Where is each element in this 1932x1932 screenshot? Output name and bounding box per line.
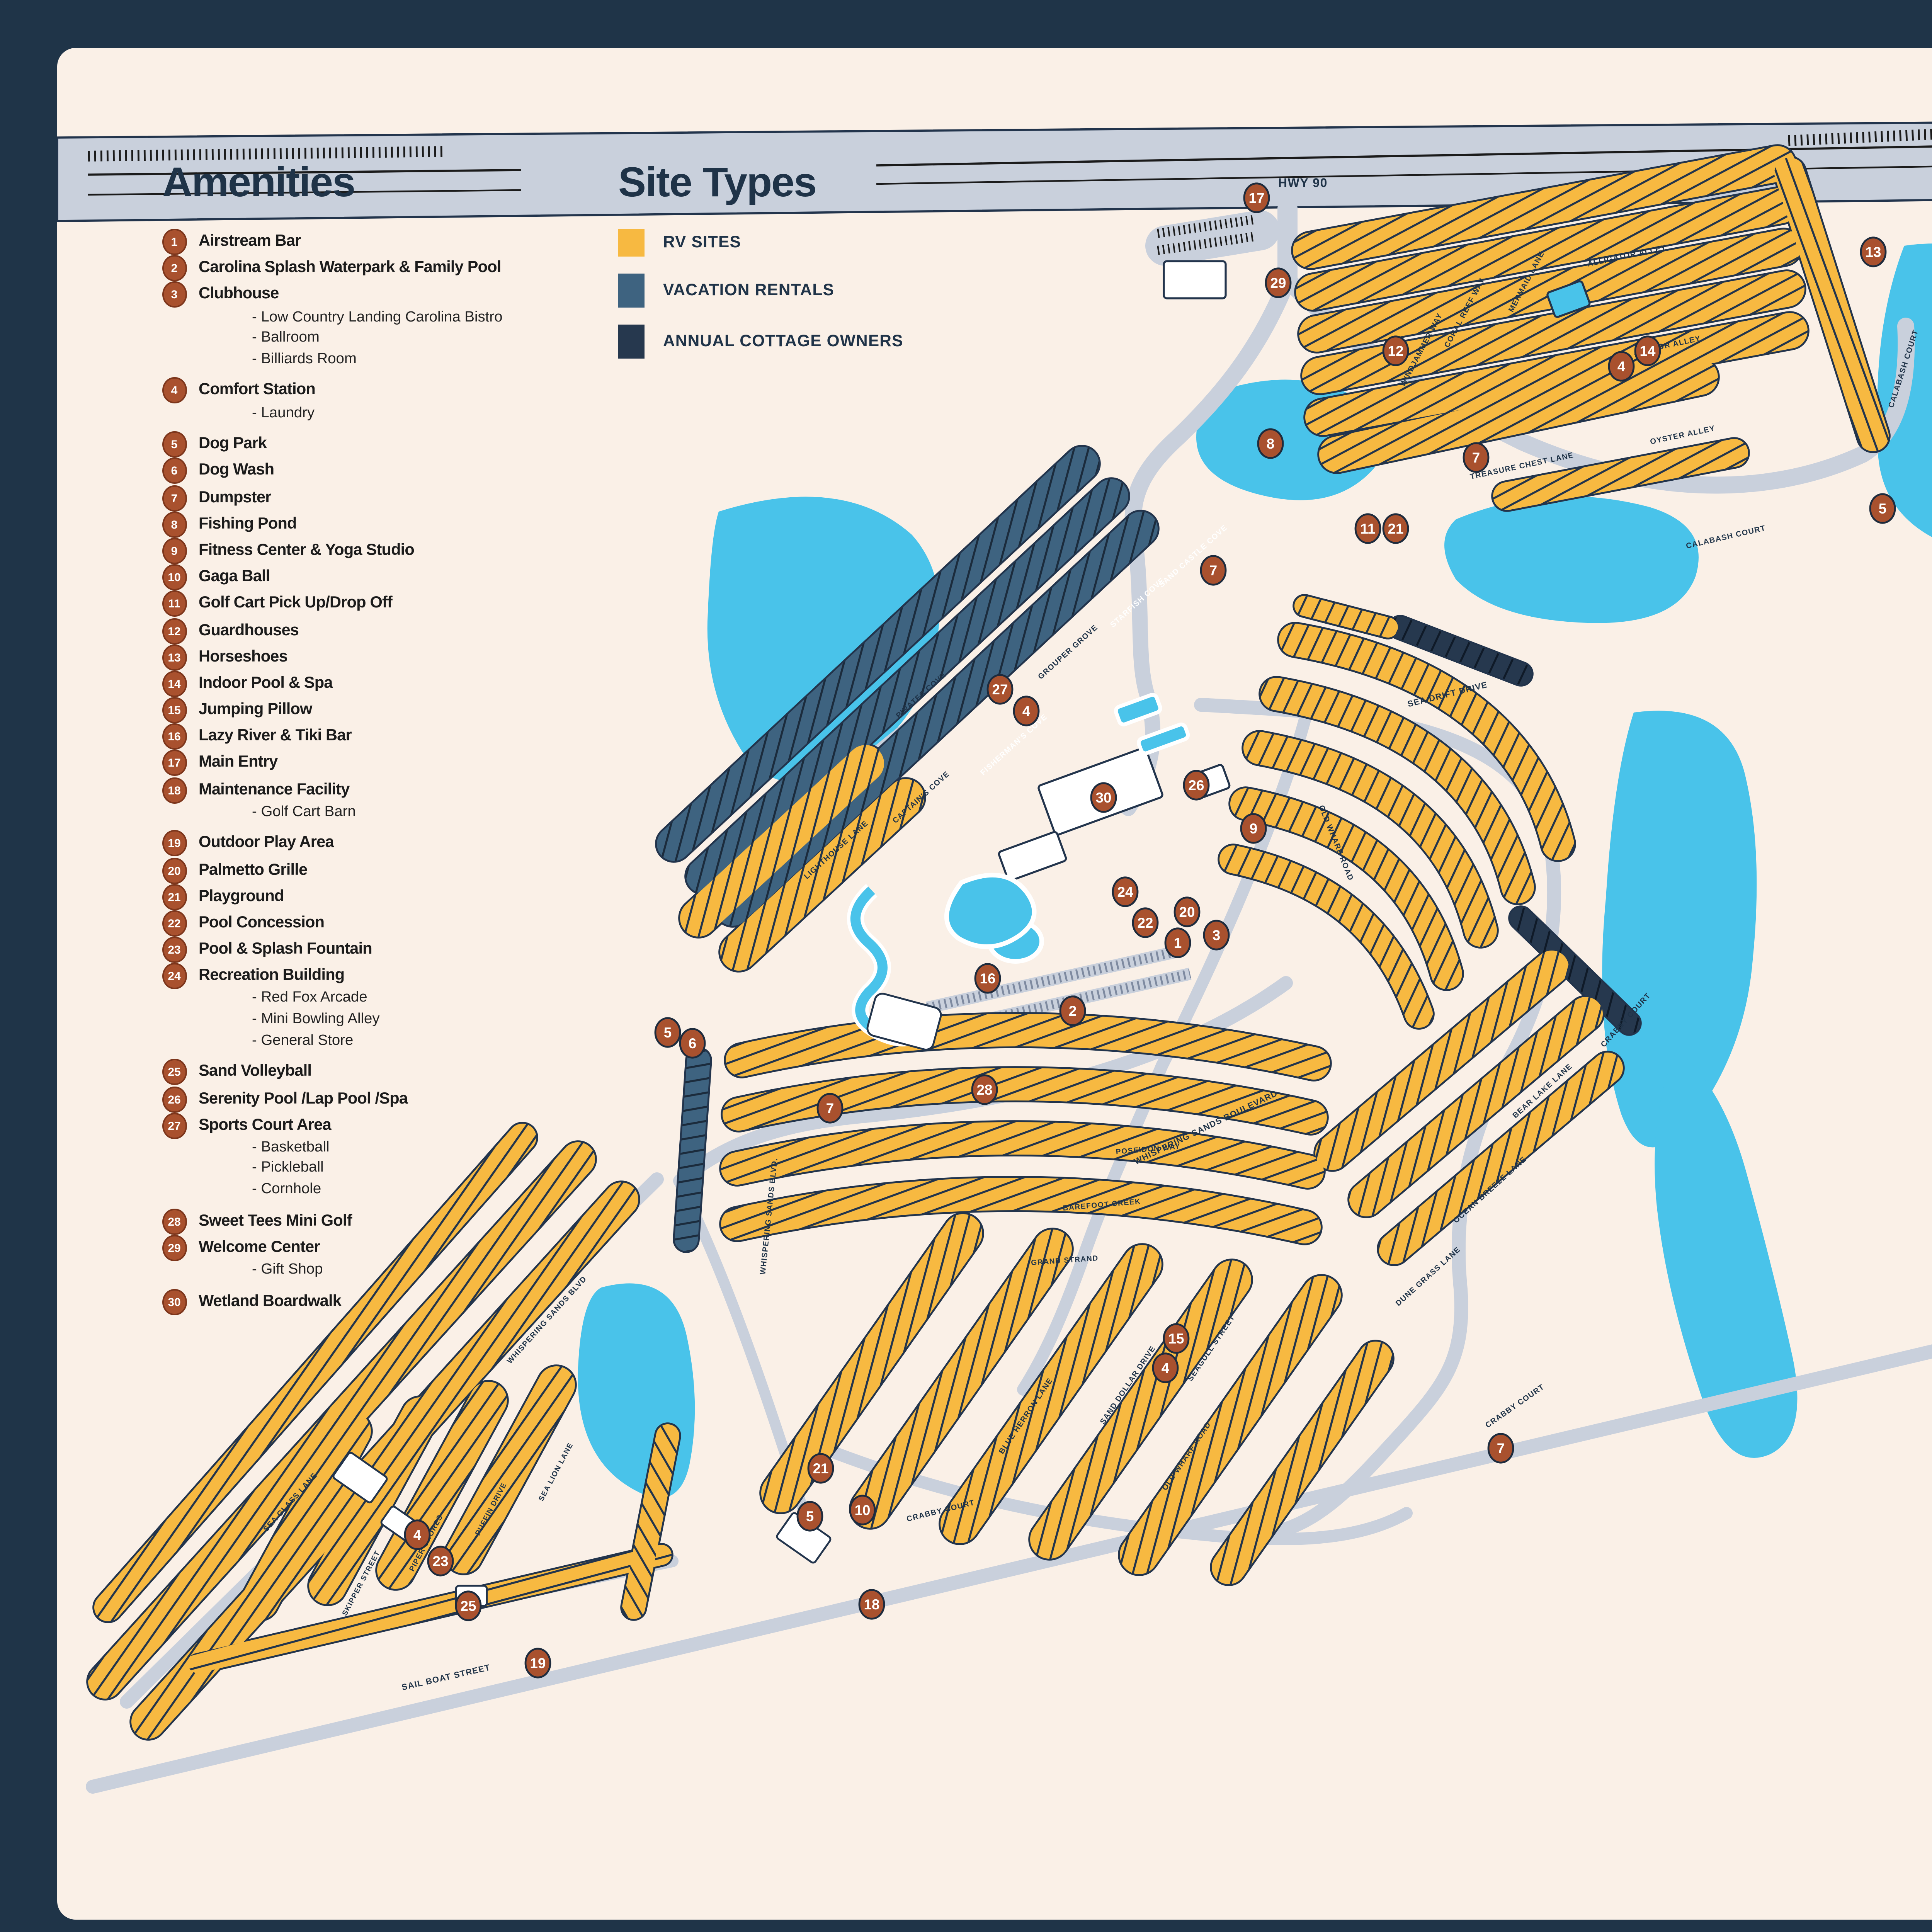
svg-text:17: 17: [1249, 190, 1265, 206]
amenities-list: 1Airstream Bar2Carolina Splash Waterpark…: [162, 229, 626, 1315]
map-marker-4: 4: [1153, 1354, 1178, 1382]
map-marker-21: 21: [808, 1454, 833, 1483]
amenity-number-badge: 13: [162, 644, 186, 670]
svg-text:14: 14: [1640, 343, 1656, 359]
map-marker-11: 11: [1355, 514, 1380, 543]
amenity-sub-item: - Gift Shop: [162, 1261, 626, 1282]
map-marker-6: 6: [680, 1029, 705, 1058]
amenity-number-badge: 22: [162, 910, 186, 937]
map-marker-19: 19: [526, 1649, 550, 1677]
street-label: SAIL BOAT STREET: [401, 1662, 492, 1692]
amenity-number-badge: 19: [162, 831, 186, 857]
amenity-number-badge: 21: [162, 884, 186, 910]
svg-text:5: 5: [664, 1025, 672, 1041]
amenity-label: Recreation Building: [199, 968, 344, 985]
map-marker-7: 7: [818, 1094, 842, 1122]
map-marker-21: 21: [1383, 514, 1408, 543]
amenity-sub-item: - Basketball: [162, 1139, 626, 1160]
amenity-item-13: 13Horseshoes: [162, 644, 626, 671]
map-marker-17: 17: [1244, 184, 1269, 212]
amenity-label: Dumpster: [199, 489, 271, 506]
amenity-number-badge: 27: [162, 1112, 186, 1139]
site-type-label: ANNUAL COTTAGE OWNERS: [663, 332, 903, 351]
map-marker-9: 9: [1241, 814, 1266, 843]
amenity-sub-item: - Ballroom: [162, 330, 626, 350]
amenity-number-badge: 15: [162, 697, 186, 723]
sites-a-calabash: [1790, 173, 1873, 436]
amenity-label: Pool Concession: [199, 915, 324, 932]
amenity-item-29: 29Welcome Center: [162, 1235, 626, 1261]
amenity-number-badge: 29: [162, 1235, 186, 1261]
amenity-sub-item: - Low Country Landing Carolina Bistro: [162, 308, 626, 329]
amenity-label: Indoor Pool & Spa: [199, 675, 333, 692]
map-marker-4: 4: [1609, 352, 1634, 381]
map-marker-4: 4: [405, 1520, 430, 1549]
svg-text:7: 7: [826, 1100, 834, 1116]
amenity-number-badge: 4: [162, 378, 186, 404]
map-marker-7: 7: [1488, 1434, 1513, 1463]
street-label: CALABASH COURT: [1685, 524, 1767, 551]
amenity-item-22: 22Pool Concession: [162, 910, 626, 937]
svg-text:4: 4: [1162, 1360, 1170, 1376]
amenity-item-10: 10Gaga Ball: [162, 564, 626, 591]
map-marker-20: 20: [1175, 898, 1199, 926]
amenity-number-badge: 26: [162, 1086, 186, 1112]
map-marker-5: 5: [798, 1502, 822, 1531]
amenity-item-16: 16Lazy River & Tiki Bar: [162, 724, 626, 750]
amenity-item-30: 30Wetland Boardwalk: [162, 1288, 626, 1315]
map-marker-3: 3: [1204, 921, 1229, 949]
amenity-item-7: 7Dumpster: [162, 485, 626, 511]
amenity-item-21: 21Playground: [162, 884, 626, 910]
svg-text:12: 12: [1388, 343, 1404, 359]
map-marker-5: 5: [1870, 494, 1895, 523]
svg-text:23: 23: [433, 1553, 449, 1569]
amenity-label: Fishing Pond: [199, 516, 297, 533]
map-marker-8: 8: [1258, 429, 1283, 458]
welcome-center-building: [1164, 261, 1226, 298]
amenity-label: Serenity Pool /Lap Pool /Spa: [199, 1090, 408, 1107]
amenity-item-26: 26Serenity Pool /Lap Pool /Spa: [162, 1086, 626, 1112]
amenity-label: Carolina Splash Waterpark & Family Pool: [199, 260, 501, 277]
amenity-item-17: 17Main Entry: [162, 750, 626, 777]
map-marker-29: 29: [1266, 269, 1291, 297]
amenity-sub-item: - General Store: [162, 1032, 626, 1053]
amenity-label: Pool & Splash Fountain: [199, 942, 372, 959]
svg-text:26: 26: [1189, 777, 1204, 793]
street-label: HWY 90: [1278, 176, 1328, 190]
amenity-number-badge: 10: [162, 565, 186, 591]
amenity-item-24: 24Recreation Building: [162, 963, 626, 990]
site-type-row: VACATION RENTALS: [618, 274, 989, 308]
svg-text:16: 16: [980, 971, 996, 986]
site-types-title: Site Types: [618, 159, 989, 207]
amenity-number-badge: 17: [162, 750, 186, 777]
amenity-item-8: 8Fishing Pond: [162, 511, 626, 538]
amenities-legend: Amenities 1Airstream Bar2Carolina Splash…: [162, 159, 626, 1315]
recreation-building: [998, 831, 1067, 881]
amenity-label: Fitness Center & Yoga Studio: [199, 543, 414, 560]
amenity-number-badge: 20: [162, 857, 186, 884]
svg-text:9: 9: [1250, 821, 1257, 837]
map-marker-7: 7: [1464, 443, 1488, 472]
amenity-sub-item: - Laundry: [162, 404, 626, 425]
svg-text:25: 25: [461, 1598, 476, 1614]
amenity-label: Airstream Bar: [199, 233, 301, 250]
site-types-list: RV SITESVACATION RENTALSANNUAL COTTAGE O…: [618, 229, 989, 359]
site-type-swatch: [618, 274, 645, 308]
svg-text:11: 11: [1361, 521, 1376, 537]
svg-text:22: 22: [1138, 915, 1153, 931]
amenity-label: Sports Court Area: [199, 1117, 331, 1134]
svg-text:13: 13: [1866, 244, 1881, 260]
amenity-label: Golf Cart Pick Up/Drop Off: [199, 595, 392, 612]
resort-map-panel: HWY 90WINDJAMMER WAYCORAL REEF WAYMERMAI…: [57, 48, 1932, 1920]
amenity-sub-item: - Billiards Room: [162, 350, 626, 371]
map-marker-15: 15: [1164, 1324, 1189, 1353]
map-marker-28: 28: [972, 1075, 997, 1104]
amenity-number-badge: 7: [162, 485, 186, 511]
map-marker-10: 10: [850, 1496, 875, 1524]
amenity-label: Horseshoes: [199, 649, 287, 666]
svg-text:29: 29: [1270, 275, 1286, 291]
amenity-label: Outdoor Play Area: [199, 835, 334, 852]
map-marker-22: 22: [1133, 908, 1158, 937]
svg-text:30: 30: [1096, 790, 1112, 806]
map-marker-24: 24: [1113, 878, 1138, 906]
amenity-label: Clubhouse: [199, 287, 279, 304]
map-marker-23: 23: [428, 1547, 453, 1575]
map-marker-2: 2: [1060, 997, 1085, 1025]
svg-text:1: 1: [1174, 935, 1182, 951]
amenity-number-badge: 2: [162, 255, 186, 282]
amenity-number-badge: 6: [162, 458, 186, 485]
amenity-item-11: 11Golf Cart Pick Up/Drop Off: [162, 591, 626, 617]
amenity-label: Maintenance Facility: [199, 782, 350, 799]
amenity-sub-item: - Red Fox Arcade: [162, 990, 626, 1011]
amenity-item-2: 2Carolina Splash Waterpark & Family Pool: [162, 255, 626, 282]
svg-text:8: 8: [1267, 436, 1274, 452]
amenity-number-badge: 11: [162, 591, 186, 617]
sites-d-vacation: [686, 1060, 699, 1240]
map-marker-18: 18: [859, 1590, 884, 1619]
sites-f: [781, 1233, 963, 1493]
svg-text:4: 4: [1022, 703, 1031, 719]
amenity-number-badge: 18: [162, 777, 186, 803]
amenity-item-25: 25Sand Volleyball: [162, 1059, 626, 1086]
map-marker-16: 16: [975, 964, 1000, 993]
map-marker-12: 12: [1383, 337, 1408, 365]
site-type-label: VACATION RENTALS: [663, 281, 834, 300]
map-marker-27: 27: [988, 675, 1012, 704]
svg-text:10: 10: [855, 1502, 871, 1518]
amenity-item-9: 9Fitness Center & Yoga Studio: [162, 538, 626, 565]
amenity-item-27: 27Sports Court Area: [162, 1112, 626, 1139]
pond-g-cluster: [578, 1283, 695, 1498]
site-type-swatch: [618, 325, 645, 359]
amenity-label: Sweet Tees Mini Golf: [199, 1213, 352, 1230]
amenity-sub-item: - Mini Bowling Alley: [162, 1011, 626, 1032]
svg-text:5: 5: [806, 1509, 814, 1524]
map-marker-7: 7: [1201, 556, 1226, 585]
amenity-label: Playground: [199, 888, 284, 905]
svg-text:24: 24: [1117, 884, 1133, 900]
site-type-row: RV SITES: [618, 229, 989, 257]
map-marker-4: 4: [1014, 697, 1039, 725]
waterpark-lagoon: [947, 875, 1034, 947]
amenity-number-badge: 3: [162, 282, 186, 308]
street-label: CRABBY COURT: [1484, 1383, 1546, 1430]
amenity-label: Welcome Center: [199, 1240, 320, 1257]
svg-text:5: 5: [1879, 501, 1886, 517]
svg-text:6: 6: [689, 1036, 696, 1051]
amenity-item-3: 3Clubhouse: [162, 282, 626, 309]
svg-text:7: 7: [1472, 450, 1480, 466]
svg-text:2: 2: [1069, 1003, 1077, 1019]
svg-text:21: 21: [813, 1461, 829, 1476]
svg-text:7: 7: [1209, 563, 1217, 578]
amenity-label: Palmetto Grille: [199, 862, 307, 879]
amenity-item-14: 14Indoor Pool & Spa: [162, 670, 626, 697]
amenity-label: Wetland Boardwalk: [199, 1293, 341, 1310]
amenity-sub-item: - Cornhole: [162, 1181, 626, 1202]
amenity-item-23: 23Pool & Splash Fountain: [162, 937, 626, 963]
amenity-number-badge: 24: [162, 964, 186, 990]
amenity-number-badge: 14: [162, 671, 186, 697]
amenity-item-4: 4Comfort Station: [162, 378, 626, 404]
amenity-number-badge: 23: [162, 937, 186, 963]
svg-text:21: 21: [1388, 521, 1404, 537]
map-marker-30: 30: [1091, 783, 1116, 812]
poster: HWY 90WINDJAMMER WAYCORAL REEF WAYMERMAI…: [0, 0, 1932, 1932]
amenity-number-badge: 12: [162, 617, 186, 644]
amenity-item-15: 15Jumping Pillow: [162, 697, 626, 724]
amenity-number-badge: 30: [162, 1289, 186, 1315]
amenity-item-20: 20Palmetto Grille: [162, 857, 626, 884]
amenity-label: Jumping Pillow: [199, 702, 312, 719]
amenity-label: Dog Park: [199, 436, 267, 453]
amenity-number-badge: 9: [162, 538, 186, 564]
amenity-number-badge: 25: [162, 1059, 186, 1085]
amenity-number-badge: 8: [162, 511, 186, 537]
amenity-item-19: 19Outdoor Play Area: [162, 830, 626, 857]
svg-text:7: 7: [1497, 1440, 1505, 1456]
amenity-item-28: 28Sweet Tees Mini Golf: [162, 1208, 626, 1235]
site-type-row: ANNUAL COTTAGE OWNERS: [618, 325, 989, 359]
amenity-sub-item: - Golf Cart Barn: [162, 803, 626, 824]
svg-text:4: 4: [413, 1527, 422, 1543]
amenity-item-6: 6Dog Wash: [162, 458, 626, 485]
site-type-label: RV SITES: [663, 233, 741, 252]
svg-text:27: 27: [992, 682, 1008, 697]
svg-text:28: 28: [977, 1082, 993, 1098]
map-marker-26: 26: [1184, 771, 1209, 799]
map-marker-25: 25: [456, 1592, 481, 1620]
sites-c-head: [1304, 606, 1388, 628]
amenity-number-badge: 5: [162, 432, 186, 458]
amenity-item-5: 5Dog Park: [162, 432, 626, 458]
amenity-number-badge: 16: [162, 724, 186, 750]
map-marker-14: 14: [1635, 337, 1660, 365]
amenity-label: Main Entry: [199, 755, 278, 772]
amenity-label: Dog Wash: [199, 463, 274, 480]
amenity-label: Guardhouses: [199, 622, 299, 639]
map-marker-13: 13: [1861, 238, 1886, 266]
svg-text:4: 4: [1617, 359, 1626, 374]
amenity-number-badge: 28: [162, 1208, 186, 1235]
amenity-sub-item: - Pickleball: [162, 1160, 626, 1181]
amenity-item-12: 12Guardhouses: [162, 617, 626, 644]
amenity-item-18: 18Maintenance Facility: [162, 777, 626, 803]
map-marker-1: 1: [1165, 929, 1190, 957]
site-type-swatch: [618, 229, 645, 257]
svg-text:15: 15: [1168, 1331, 1184, 1347]
street-label: FISHERMAN'S COVE: [979, 713, 1049, 777]
site-types-legend: Site Types RV SITESVACATION RENTALSANNUA…: [618, 159, 989, 376]
svg-text:18: 18: [864, 1597, 880, 1612]
amenity-label: Lazy River & Tiki Bar: [199, 728, 352, 745]
amenity-item-1: 1Airstream Bar: [162, 229, 626, 255]
pond-mid-right: [1444, 496, 1699, 623]
amenity-label: Comfort Station: [199, 383, 315, 400]
amenity-number-badge: 1: [162, 229, 186, 255]
svg-text:19: 19: [530, 1655, 546, 1671]
amenity-label: Sand Volleyball: [199, 1064, 311, 1081]
amenities-title: Amenities: [162, 159, 626, 207]
svg-text:3: 3: [1213, 927, 1220, 943]
svg-text:20: 20: [1179, 904, 1195, 920]
map-marker-5: 5: [655, 1018, 680, 1047]
amenity-label: Gaga Ball: [199, 569, 270, 586]
